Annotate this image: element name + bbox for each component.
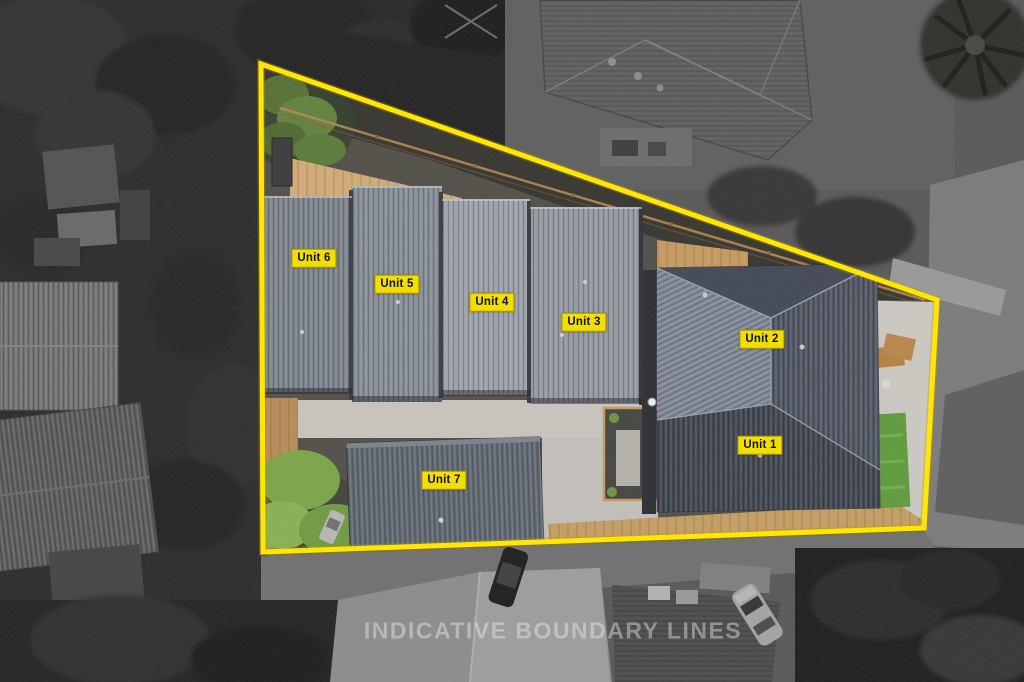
unit-2-label: Unit 2	[739, 330, 784, 349]
unit-4-label: Unit 4	[469, 293, 514, 312]
photo-canvas	[0, 0, 1024, 682]
unit-5-label: Unit 5	[374, 275, 419, 294]
unit-1-label: Unit 1	[737, 436, 782, 455]
watermark-text: INDICATIVE BOUNDARY LINES	[364, 618, 742, 645]
unit-7-label: Unit 7	[421, 471, 466, 490]
unit-6-label: Unit 6	[291, 249, 336, 268]
aerial-photo: Unit 1 Unit 2 Unit 3 Unit 4 Unit 5 Unit …	[0, 0, 1024, 682]
photo-grain	[0, 0, 1024, 682]
unit-3-label: Unit 3	[561, 313, 606, 332]
